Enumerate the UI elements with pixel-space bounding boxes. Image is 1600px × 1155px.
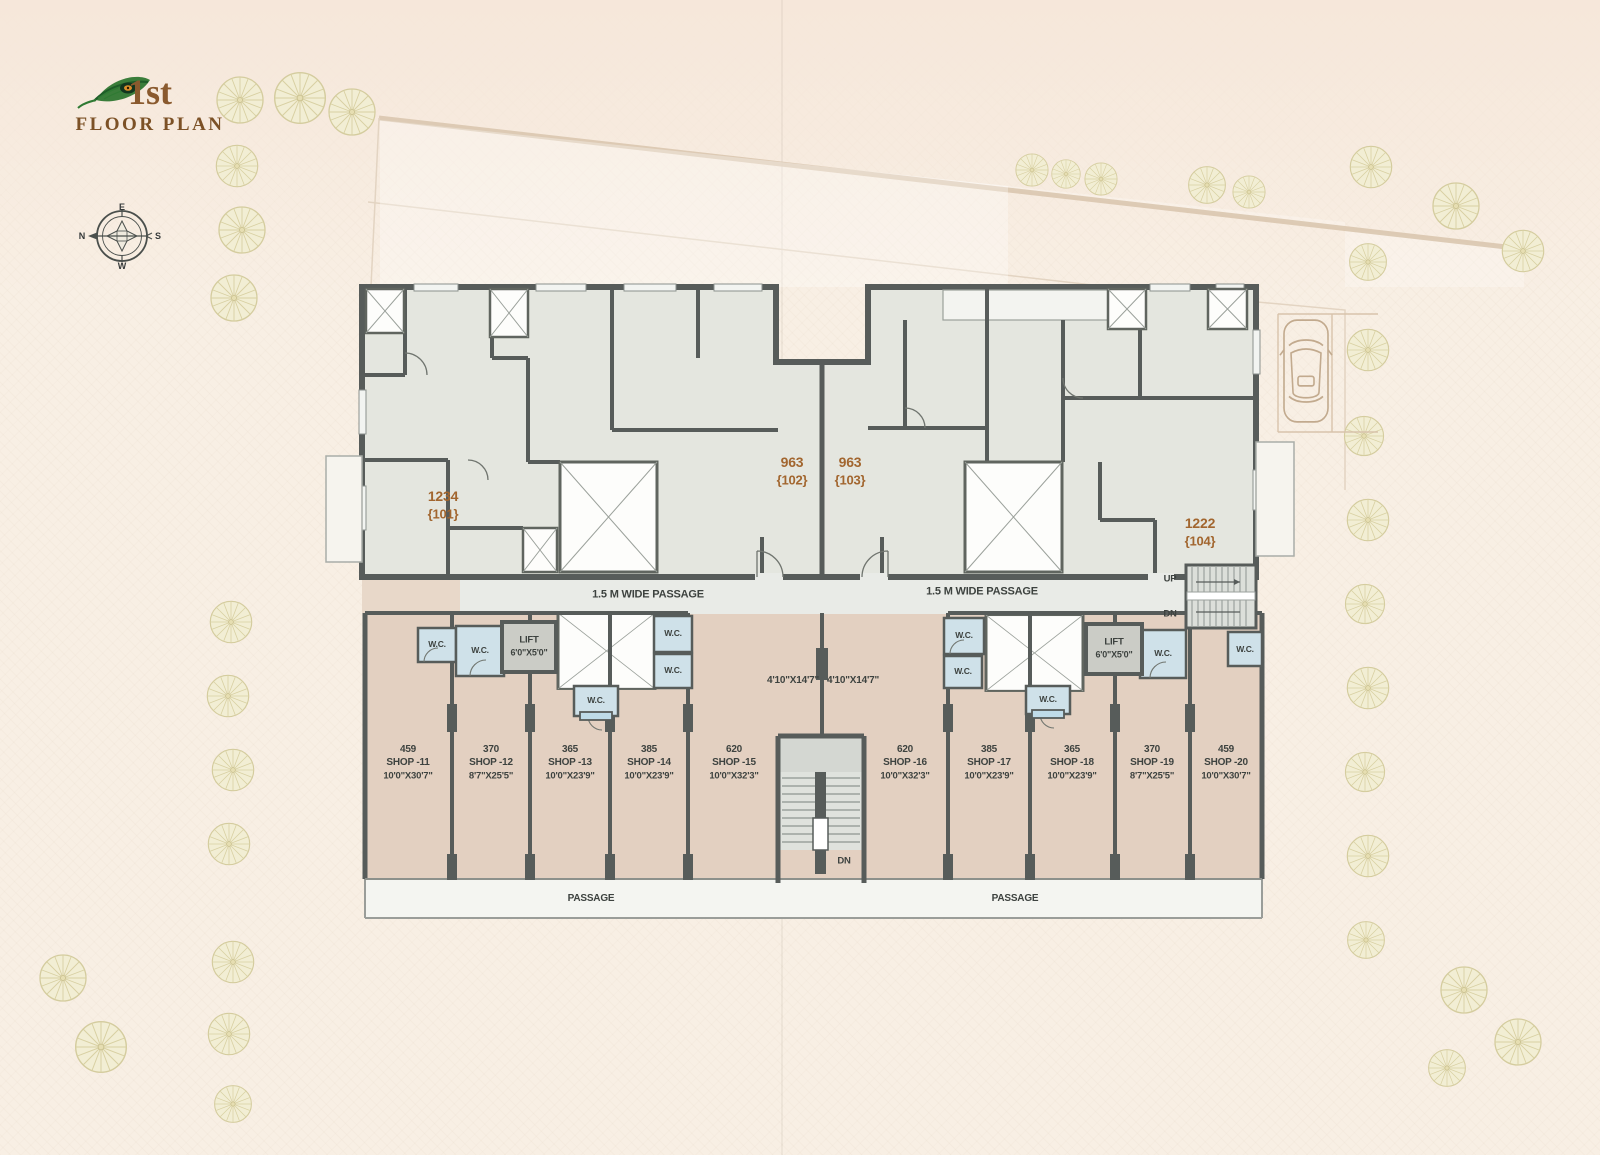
wide-passage-left-label: 1.5 M WIDE PASSAGE [592,590,704,601]
floor-plan-label: FLOOR PLAN [40,114,260,136]
unit-102-number: {102} [777,474,808,487]
floor-plan-canvas: 1st FLOOR PLAN E N S W 1234 {101} 963 {1… [0,0,1600,1155]
shopfront-dim-left: 4'10"X14'7" [767,676,819,686]
unit-102-area: 963 [781,455,804,469]
passage-right-label: PASSAGE [992,894,1039,904]
corridor-band [460,577,1256,614]
shop-14-name: SHOP -14 [627,758,671,768]
wc-label: W.C. [955,631,973,640]
shop-11-name: SHOP -11 [386,758,429,768]
shop-11-area: 459 [400,745,416,755]
wc-label: W.C. [471,646,489,655]
wc-label: W.C. [664,629,682,638]
shop-16-name: SHOP -16 [883,758,927,768]
shop-20-size: 10'0"X30'7" [1201,771,1250,781]
wc-label: W.C. [587,696,605,705]
shop-13-name: SHOP -13 [548,758,592,768]
compass-south: S [155,231,161,241]
unit-103-area: 963 [839,455,862,469]
shop-12-size: 8'7"X25'5" [469,771,513,781]
wide-passage-right-label: 1.5 M WIDE PASSAGE [926,587,1038,598]
shop-15-area: 620 [726,745,742,755]
compass-west: W [118,261,127,271]
shop-13-size: 10'0"X23'9" [545,771,594,781]
compass-icon [88,210,152,262]
shop-17-area: 385 [981,745,997,755]
compass-north: N [79,231,86,241]
central-stair-dn-label: DN [837,856,850,866]
lift-left-label: LIFT [519,635,538,645]
shop-19-name: SHOP -19 [1130,758,1174,768]
wc-label: W.C. [1236,645,1254,654]
shop-12-area: 370 [483,745,499,755]
balcony-shafts [366,289,1247,337]
lift-right-label: LIFT [1104,637,1123,647]
shop-14-area: 385 [641,745,657,755]
car-icon [1280,320,1332,422]
shop-11-size: 10'0"X30'7" [383,771,432,781]
unit-104-area: 1222 [1185,516,1215,530]
shop-20-name: SHOP -20 [1204,758,1248,768]
shop-19-area: 370 [1144,745,1160,755]
shop-19-size: 8'7"X25'5" [1130,771,1174,781]
plan-title: 1st FLOOR PLAN [40,70,260,136]
shop-16-size: 10'0"X32'3" [880,771,929,781]
stair-up-label: UP [1164,574,1177,584]
shop-13-area: 365 [562,745,578,755]
shop-12-name: SHOP -12 [469,758,513,768]
shop-18-area: 365 [1064,745,1080,755]
right-staircase [1186,565,1256,628]
shop-20-area: 459 [1218,745,1234,755]
shop-17-size: 10'0"X23'9" [964,771,1013,781]
wc-label: W.C. [664,666,682,675]
wc-label: W.C. [1039,695,1057,704]
wc-label: W.C. [428,640,446,649]
unit-103-number: {103} [835,474,866,487]
compass-east: E [119,202,125,212]
shop-16-area: 620 [897,745,913,755]
floor-number: 1st [40,74,260,110]
shop-15-size: 10'0"X32'3" [709,771,758,781]
shopfront-dim-right: 4'10"X14'7" [827,676,879,686]
shop-18-name: SHOP -18 [1050,758,1094,768]
unit-101-area: 1234 [428,489,458,503]
plan-drawing [0,0,1600,1155]
shop-17-name: SHOP -17 [967,758,1011,768]
passage-left-label: PASSAGE [568,894,615,904]
lift-left-size: 6'0"X5'0" [510,649,547,658]
wc-label: W.C. [954,667,972,676]
lift-right-size: 6'0"X5'0" [1095,651,1132,660]
stair-dn-label: DN [1163,609,1176,619]
shop-15-name: SHOP -15 [712,758,756,768]
wc-label: W.C. [1154,649,1172,658]
unit-104-number: {104} [1185,535,1216,548]
unit-101-number: {101} [428,508,459,521]
shop-18-size: 10'0"X23'9" [1047,771,1096,781]
shop-14-size: 10'0"X23'9" [624,771,673,781]
